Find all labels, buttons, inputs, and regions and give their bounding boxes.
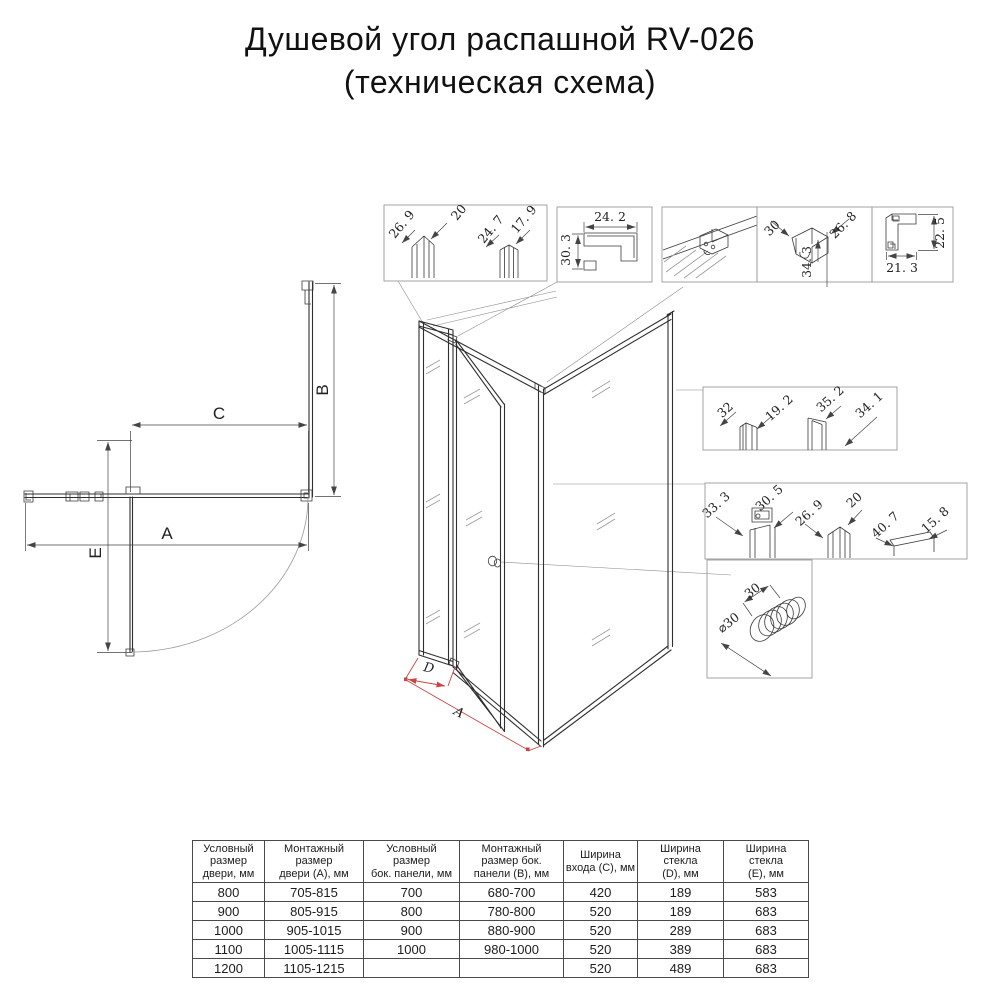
technical-scheme-page: Душевой угол распашной RV-026 (техническ… [0, 0, 1000, 1000]
dim-34-1: 34. 1 [852, 388, 886, 420]
dim-26-9: 26. 9 [386, 207, 418, 241]
cell: 520 [564, 940, 638, 959]
dim-22-5: 22. 5 [932, 217, 947, 249]
col-door-nominal: Условный размер двери, мм [193, 841, 265, 883]
cell: 980-1000 [460, 940, 564, 959]
dim-30b: 30 [761, 217, 783, 239]
cell: 389 [638, 940, 724, 959]
dim-d30-knob: ⌀30 [714, 609, 742, 635]
dim-26-9b: 26. 9 [792, 496, 826, 528]
plan-dim-c: C [213, 404, 225, 423]
dim-15-8: 15. 8 [918, 503, 952, 535]
plan-dim-e: E [86, 547, 105, 558]
detail-side-seals: 32 19. 2 35. 2 34. 1 [703, 382, 897, 450]
door-knob [488, 556, 500, 567]
iso-view: D A [398, 281, 731, 751]
size-spec-table: Условный размер двери, мм Монтажный разм… [192, 840, 809, 978]
cell: 805-915 [265, 902, 364, 921]
col-entry-width: Ширина входа (С), мм [564, 841, 638, 883]
dim-33-3: 33. 3 [699, 488, 733, 520]
detail-top-bracket: 30 26. 8 34. 3 [757, 207, 872, 287]
dim-20: 20 [448, 201, 470, 223]
dim-30-5: 30. 5 [752, 481, 786, 513]
glass-hatch-left-panel [426, 360, 440, 624]
cell: 900 [364, 921, 460, 940]
plan-view: B C A E [24, 281, 341, 656]
cell: 583 [724, 883, 809, 902]
cell: 683 [724, 921, 809, 940]
cell: 700 [364, 883, 460, 902]
table-row: 1000 905-1015 900 880-900 520 289 683 [193, 921, 809, 940]
table-header-row: Условный размер двери, мм Монтажный разм… [193, 841, 809, 883]
cell: 1000 [364, 940, 460, 959]
col-door-mounting: Монтажный размер двери (А), мм [265, 841, 364, 883]
dim-24-7: 24. 7 [475, 212, 507, 246]
cell: 520 [564, 902, 638, 921]
dim-40-7: 40. 7 [868, 508, 902, 540]
cell: 1200 [193, 959, 265, 978]
plan-dim-a: A [161, 524, 173, 543]
cell: 683 [724, 959, 809, 978]
detail-wall-bracket [662, 207, 757, 282]
table-row: 900 805-915 800 780-800 520 189 683 [193, 902, 809, 921]
dim-19-2: 19. 2 [762, 391, 796, 423]
cell: 800 [364, 902, 460, 921]
table-row: 1100 1005-1115 1000 980-1000 520 389 683 [193, 940, 809, 959]
table-row: 800 705-815 700 680-700 420 189 583 [193, 883, 809, 902]
cell: 1000 [193, 921, 265, 940]
cell: 680-700 [460, 883, 564, 902]
dim-30-3: 30. 3 [558, 234, 573, 266]
detail-bottom-profiles: 33. 3 30. 5 26. 9 20 40. 7 15. 8 [699, 481, 967, 559]
cell: 1105-1215 [265, 959, 364, 978]
cell: 705-815 [265, 883, 364, 902]
cell: 489 [638, 959, 724, 978]
detail-corner-profile: 24. 2 30. 3 [557, 207, 652, 282]
dim-26-8: 26. 8 [826, 208, 859, 241]
glass-hatch-door [464, 389, 482, 638]
cell: 780-800 [460, 902, 564, 921]
cell: 683 [724, 940, 809, 959]
cell: 1005-1115 [265, 940, 364, 959]
cell: 880-900 [460, 921, 564, 940]
cell [364, 959, 460, 978]
dim-20b: 20 [843, 489, 865, 511]
detail-door-profiles: 26. 9 20 24. 7 17. 9 [384, 201, 547, 281]
detail-knob: 30 ⌀30 [707, 560, 812, 678]
cell: 520 [564, 959, 638, 978]
glass-hatch-side-panel [592, 381, 615, 646]
cell [460, 959, 564, 978]
cell: 905-1015 [265, 921, 364, 940]
dim-21-3: 21. 3 [886, 260, 918, 275]
dim-34-3: 34. 3 [799, 246, 814, 278]
dim-24-2: 24. 2 [594, 209, 626, 224]
dim-30-knob: 30 [741, 580, 763, 602]
plan-dim-b: B [313, 384, 332, 395]
detail-l-profile: 22. 5 21. 3 [872, 207, 953, 282]
cell: 520 [564, 921, 638, 940]
knob-drawing [745, 594, 809, 646]
table-row: 1200 1105-1215 520 489 683 [193, 959, 809, 978]
iso-dim-d: D [421, 660, 436, 677]
cell: 1100 [193, 940, 265, 959]
cell: 900 [193, 902, 265, 921]
iso-dimensions: D A [404, 658, 541, 751]
cell: 189 [638, 902, 724, 921]
col-glass-e: Ширина стекла (Е), мм [724, 841, 809, 883]
cell: 683 [724, 902, 809, 921]
col-panel-nominal: Условный размер бок. панели, мм [364, 841, 460, 883]
cell: 189 [638, 883, 724, 902]
cell: 800 [193, 883, 265, 902]
cell: 289 [638, 921, 724, 940]
col-panel-mounting: Монтажный размер бок. панели (В), мм [460, 841, 564, 883]
col-glass-d: Ширина стекла (D), мм [638, 841, 724, 883]
dim-17-9: 17. 9 [508, 202, 540, 236]
cell: 420 [564, 883, 638, 902]
dim-32: 32 [714, 399, 736, 421]
